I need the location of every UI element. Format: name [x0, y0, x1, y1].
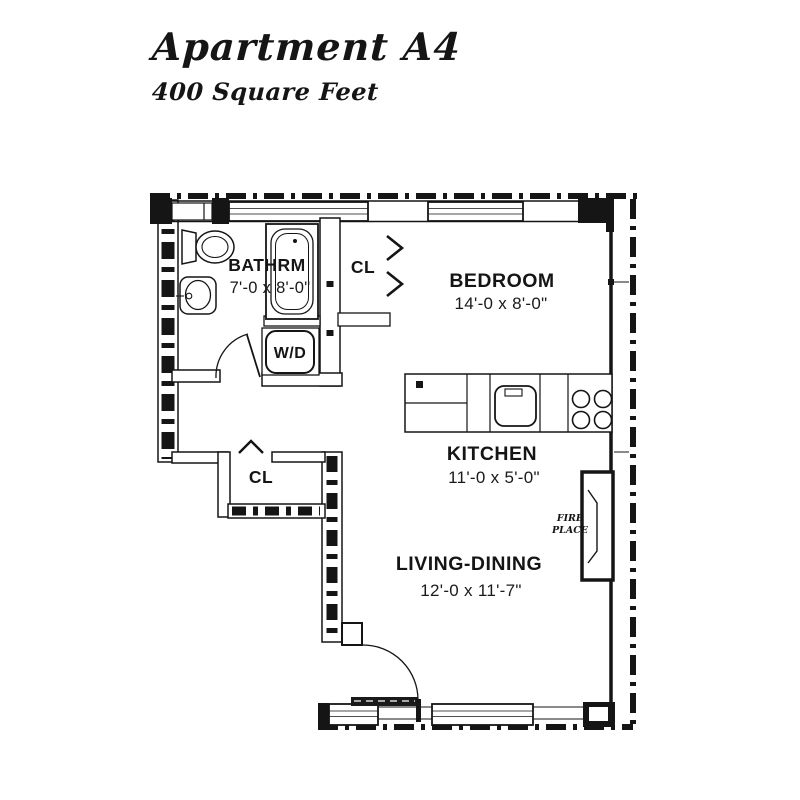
bathroom-label: BATHRM — [228, 255, 306, 275]
kitchen-counter — [405, 374, 612, 432]
upper-closet-label: CL — [351, 257, 375, 277]
kitchen-dims: 11'-0 x 5'-0" — [448, 468, 540, 487]
living-dining-label: LIVING-DINING — [396, 553, 542, 575]
hall-closet-label: CL — [249, 467, 273, 487]
left-exterior-wall — [158, 200, 178, 462]
entry-door-jamb — [342, 623, 362, 645]
bedroom-label: BEDROOM — [449, 270, 554, 292]
floor-plan-drawing: BATHRM 7'-0 x 8'-0" CL BEDROOM 14'-0 x 8… — [0, 0, 800, 800]
bathroom-door-leaf — [247, 335, 260, 377]
bifold-door-chevron-icon — [239, 441, 263, 453]
window-bedroom — [428, 202, 523, 221]
bathroom-dims: 7'-0 x 8'-0" — [230, 279, 311, 297]
bifold-door-chevron-icon — [387, 272, 402, 296]
entry-door-swing-arc — [363, 645, 418, 700]
kitchen-label: KITCHEN — [447, 443, 537, 465]
fireplace-label-line1: FIRE — [556, 513, 584, 524]
east-interior-wall — [608, 221, 629, 705]
wall-panel — [172, 203, 212, 220]
toilet-icon — [182, 230, 234, 264]
living-dining-dims: 12'-0 x 11'-7" — [420, 581, 521, 600]
north-wall — [150, 198, 614, 232]
fireplace-label-line2: PLACE — [551, 525, 589, 536]
bathroom-door-swing-arc — [216, 334, 248, 378]
window-bathroom — [229, 202, 368, 221]
window-living-left — [329, 704, 378, 725]
bifold-door-chevron-icon — [387, 236, 402, 260]
upper-closet — [338, 236, 402, 326]
closet-shelf — [338, 313, 390, 326]
bathroom-door — [216, 334, 260, 378]
floor-plan-page: Apartment A4 400 Square Feet — [0, 0, 800, 800]
window-living-center — [432, 704, 533, 725]
bedroom-dims: 14'-0 x 8'-0" — [455, 294, 548, 313]
lower-left-exterior-wall — [322, 452, 362, 645]
bathroom-sink-icon — [176, 277, 216, 314]
washer-dryer-label: W/D — [274, 345, 307, 362]
